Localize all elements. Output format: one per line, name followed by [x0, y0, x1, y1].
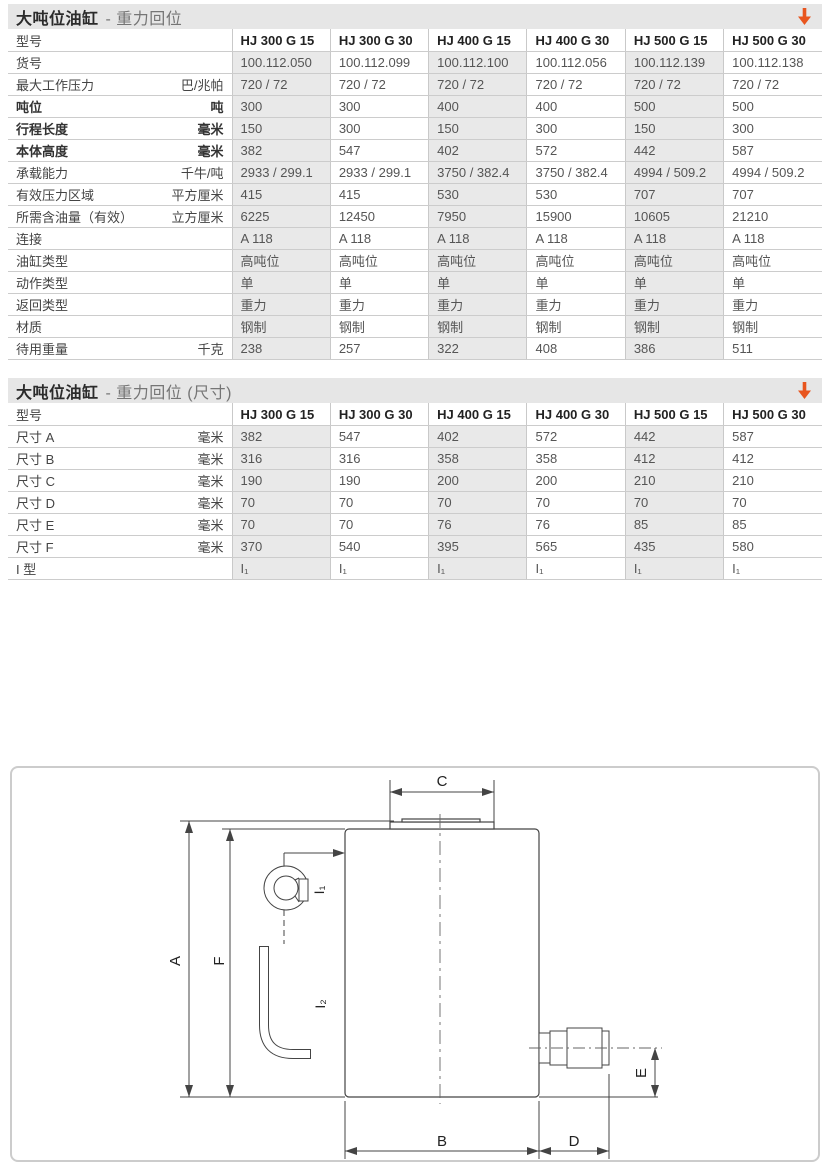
cell-value: 高吨位 — [330, 250, 428, 272]
cell-value: 10605 — [625, 206, 723, 228]
row-label: 货号 — [16, 53, 42, 72]
cell-value: 408 — [527, 338, 625, 360]
cell-value: 587 — [724, 140, 822, 162]
cell-value: 70 — [724, 492, 822, 514]
dim-label-a: A — [167, 956, 184, 966]
cell-value: 442 — [625, 140, 723, 162]
cell-value: 重力 — [625, 294, 723, 316]
cell-value: 300 — [330, 96, 428, 118]
cell-value: 565 — [527, 536, 625, 558]
cell-value: 钢制 — [527, 316, 625, 338]
cell-value: I₁ — [429, 558, 527, 580]
cell-value: I₁ — [330, 558, 428, 580]
section-title: 大吨位油缸 — [16, 5, 99, 29]
cell-value: I₁ — [625, 558, 723, 580]
cell-value: 2933 / 299.1 — [232, 162, 330, 184]
cell-value: 572 — [527, 426, 625, 448]
cell-value: 316 — [330, 448, 428, 470]
cell-value: 720 / 72 — [232, 74, 330, 96]
table-row: 行程长度毫米150300150300150300 — [8, 118, 822, 140]
cell-value: 7950 — [429, 206, 527, 228]
model-header: 型号 — [8, 403, 232, 426]
table-row: 吨位吨300300400400500500 — [8, 96, 822, 118]
cell-value: 70 — [625, 492, 723, 514]
cell-value: 70 — [527, 492, 625, 514]
model-header: 型号 — [8, 29, 232, 52]
section-title-bar: 大吨位油缸 - 重力回位 (尺寸) — [8, 378, 822, 403]
cell-value: I₁ — [724, 558, 822, 580]
cell-value: 382 — [232, 426, 330, 448]
row-unit: 毫米 — [197, 119, 223, 138]
section-title: 大吨位油缸 — [16, 379, 99, 403]
cell-value: 76 — [527, 514, 625, 536]
cell-value: 高吨位 — [625, 250, 723, 272]
cell-value: 100.112.100 — [429, 52, 527, 74]
cell-value: 6225 — [232, 206, 330, 228]
cell-value: 100.112.139 — [625, 52, 723, 74]
cell-value: 415 — [330, 184, 428, 206]
row-unit: 毫米 — [197, 515, 223, 534]
section-subtitle: - 重力回位 — [106, 5, 183, 29]
table-row: 尺寸 B毫米316316358358412412 — [8, 448, 822, 470]
row-label: 油缸类型 — [16, 251, 68, 270]
coupler-i1 — [264, 849, 345, 944]
column-header: HJ 500 G 15 — [625, 29, 723, 52]
spec-section: 大吨位油缸 - 重力回位 型号HJ 300 G 15HJ 300 G 30HJ … — [8, 4, 822, 360]
label-i2: I₂ — [312, 999, 328, 1008]
row-label: I 型 — [16, 559, 36, 578]
cell-value: 重力 — [330, 294, 428, 316]
cell-value: 钢制 — [724, 316, 822, 338]
cell-value: 210 — [625, 470, 723, 492]
cell-value: 100.112.099 — [330, 52, 428, 74]
column-header: HJ 300 G 15 — [232, 29, 330, 52]
row-unit: 吨 — [210, 97, 223, 116]
row-unit: 毫米 — [197, 471, 223, 490]
row-unit: 毫米 — [197, 141, 223, 160]
row-label: 返回类型 — [16, 295, 68, 314]
dimension-section: 大吨位油缸 - 重力回位 (尺寸) 型号HJ 300 G 15HJ 300 G … — [8, 378, 822, 580]
cell-value: A 118 — [527, 228, 625, 250]
cell-value: 190 — [330, 470, 428, 492]
column-header: HJ 300 G 30 — [330, 29, 428, 52]
row-label: 本体高度 — [16, 141, 68, 160]
cell-value: 500 — [724, 96, 822, 118]
cell-value: 257 — [330, 338, 428, 360]
row-unit: 毫米 — [197, 537, 223, 556]
column-header: HJ 400 G 30 — [527, 403, 625, 426]
cell-value: 412 — [625, 448, 723, 470]
cell-value: 720 / 72 — [625, 74, 723, 96]
column-header: HJ 400 G 30 — [527, 29, 625, 52]
cell-value: 720 / 72 — [429, 74, 527, 96]
cell-value: 316 — [232, 448, 330, 470]
cell-value: 300 — [527, 118, 625, 140]
cell-value: 200 — [527, 470, 625, 492]
cell-value: 382 — [232, 140, 330, 162]
cell-value: 高吨位 — [527, 250, 625, 272]
cell-value: 587 — [724, 426, 822, 448]
cell-value: 高吨位 — [232, 250, 330, 272]
row-label: 尺寸 D — [16, 493, 55, 512]
cell-value: 358 — [429, 448, 527, 470]
row-unit: 千牛/吨 — [181, 163, 224, 182]
cell-value: 547 — [330, 426, 428, 448]
table-row: 待用重量千克238257322408386511 — [8, 338, 822, 360]
cell-value: 12450 — [330, 206, 428, 228]
section-subtitle: - 重力回位 (尺寸) — [106, 379, 232, 403]
cell-value: 707 — [724, 184, 822, 206]
section-title-bar: 大吨位油缸 - 重力回位 — [8, 4, 822, 29]
cell-value: 540 — [330, 536, 428, 558]
cell-value: 530 — [429, 184, 527, 206]
cell-value: 70 — [232, 514, 330, 536]
cell-value: 70 — [232, 492, 330, 514]
cell-value: 150 — [625, 118, 723, 140]
row-unit: 巴/兆帕 — [181, 75, 224, 94]
cell-value: 210 — [724, 470, 822, 492]
row-unit: 立方厘米 — [171, 207, 223, 226]
table-row: 动作类型单单单单单单 — [8, 272, 822, 294]
table-row: 尺寸 D毫米707070707070 — [8, 492, 822, 514]
dim-label-c: C — [437, 773, 448, 790]
cell-value: 单 — [625, 272, 723, 294]
row-unit: 毫米 — [197, 427, 223, 446]
cell-value: 重力 — [724, 294, 822, 316]
cell-value: 85 — [724, 514, 822, 536]
cell-value: 15900 — [527, 206, 625, 228]
cell-value: 单 — [232, 272, 330, 294]
cell-value: 400 — [527, 96, 625, 118]
cell-value: 100.112.138 — [724, 52, 822, 74]
orange-down-arrow-icon[interactable] — [794, 380, 814, 402]
column-header: HJ 500 G 15 — [625, 403, 723, 426]
row-label: 尺寸 C — [16, 471, 55, 490]
row-label: 动作类型 — [16, 273, 68, 292]
column-header: HJ 300 G 30 — [330, 403, 428, 426]
cell-value: 720 / 72 — [527, 74, 625, 96]
spec-table: 型号HJ 300 G 15HJ 300 G 30HJ 400 G 15HJ 40… — [8, 29, 822, 360]
orange-down-arrow-icon[interactable] — [794, 6, 814, 28]
cell-value: 720 / 72 — [330, 74, 428, 96]
dim-label-f: F — [211, 956, 228, 965]
cell-value: 435 — [625, 536, 723, 558]
table-row: 尺寸 F毫米370540395565435580 — [8, 536, 822, 558]
saddle-top — [402, 819, 480, 822]
cell-value: 200 — [429, 470, 527, 492]
dim-label-d: D — [569, 1133, 580, 1150]
cell-value: 钢制 — [232, 316, 330, 338]
cell-value: I₁ — [527, 558, 625, 580]
cell-value: 3750 / 382.4 — [527, 162, 625, 184]
cell-value: A 118 — [330, 228, 428, 250]
table-row: 本体高度毫米382547402572442587 — [8, 140, 822, 162]
cell-value: 100.112.056 — [527, 52, 625, 74]
cell-value: 415 — [232, 184, 330, 206]
saddle-plate — [390, 822, 494, 829]
cell-value: 2933 / 299.1 — [330, 162, 428, 184]
table-row: 尺寸 C毫米190190200200210210 — [8, 470, 822, 492]
technical-drawing-panel: C B D A F E I₁ I₂ — [10, 766, 820, 1162]
cell-value: 钢制 — [625, 316, 723, 338]
handle-i2 — [259, 946, 311, 1059]
cell-value: A 118 — [625, 228, 723, 250]
row-label: 承载能力 — [16, 163, 68, 182]
row-label: 尺寸 B — [16, 449, 54, 468]
cell-value: 高吨位 — [724, 250, 822, 272]
cell-value: I₁ — [232, 558, 330, 580]
cell-value: 21210 — [724, 206, 822, 228]
table-row: 材质钢制钢制钢制钢制钢制钢制 — [8, 316, 822, 338]
cell-value: 358 — [527, 448, 625, 470]
row-label: 尺寸 F — [16, 537, 54, 556]
cell-value: 70 — [429, 492, 527, 514]
row-label: 最大工作压力 — [16, 75, 94, 94]
cell-value: 单 — [527, 272, 625, 294]
table-row: 尺寸 E毫米707076768585 — [8, 514, 822, 536]
table-header-row: 型号HJ 300 G 15HJ 300 G 30HJ 400 G 15HJ 40… — [8, 403, 822, 426]
cell-value: 高吨位 — [429, 250, 527, 272]
cell-value: 402 — [429, 426, 527, 448]
cell-value: 单 — [724, 272, 822, 294]
cell-value: 单 — [330, 272, 428, 294]
cell-value: A 118 — [724, 228, 822, 250]
cell-value: 重力 — [429, 294, 527, 316]
cell-value: 511 — [724, 338, 822, 360]
cell-value: A 118 — [429, 228, 527, 250]
cell-value: 386 — [625, 338, 723, 360]
cell-value: 370 — [232, 536, 330, 558]
cell-value: 300 — [724, 118, 822, 140]
row-unit: 毫米 — [197, 493, 223, 512]
row-label: 待用重量 — [16, 339, 68, 358]
table-row: 油缸类型高吨位高吨位高吨位高吨位高吨位高吨位 — [8, 250, 822, 272]
row-label: 连接 — [16, 229, 42, 248]
cell-value: 4994 / 509.2 — [625, 162, 723, 184]
dimension-table: 型号HJ 300 G 15HJ 300 G 30HJ 400 G 15HJ 40… — [8, 403, 822, 580]
cell-value: 442 — [625, 426, 723, 448]
label-i1: I₁ — [311, 885, 327, 894]
cell-value: 重力 — [232, 294, 330, 316]
cell-value: A 118 — [232, 228, 330, 250]
cell-value: 400 — [429, 96, 527, 118]
row-label: 有效压力区域 — [16, 185, 94, 204]
cell-value: 720 / 72 — [724, 74, 822, 96]
dim-label-e: E — [633, 1068, 650, 1078]
table-row: I 型I₁I₁I₁I₁I₁I₁ — [8, 558, 822, 580]
cell-value: 402 — [429, 140, 527, 162]
cell-value: 85 — [625, 514, 723, 536]
cell-value: 238 — [232, 338, 330, 360]
row-unit: 毫米 — [197, 449, 223, 468]
row-unit: 平方厘米 — [171, 185, 223, 204]
row-label: 尺寸 E — [16, 515, 54, 534]
cell-value: 重力 — [527, 294, 625, 316]
cell-value: 150 — [232, 118, 330, 140]
cell-value: 70 — [330, 514, 428, 536]
cell-value: 322 — [429, 338, 527, 360]
row-unit: 千克 — [197, 339, 223, 358]
cylinder-drawing: C B D A F E I₁ I₂ — [12, 768, 818, 1160]
cell-value: 钢制 — [330, 316, 428, 338]
cell-value: 547 — [330, 140, 428, 162]
cell-value: 500 — [625, 96, 723, 118]
dim-label-b: B — [437, 1133, 447, 1150]
table-row: 连接A 118A 118A 118A 118A 118A 118 — [8, 228, 822, 250]
table-row: 所需含油量（有效）立方厘米622512450795015900106052121… — [8, 206, 822, 228]
cell-value: 530 — [527, 184, 625, 206]
table-row: 尺寸 A毫米382547402572442587 — [8, 426, 822, 448]
cell-value: 190 — [232, 470, 330, 492]
cell-value: 580 — [724, 536, 822, 558]
row-label: 行程长度 — [16, 119, 68, 138]
column-header: HJ 500 G 30 — [724, 403, 822, 426]
cell-value: 412 — [724, 448, 822, 470]
table-row: 有效压力区域平方厘米415415530530707707 — [8, 184, 822, 206]
cell-value: 70 — [330, 492, 428, 514]
table-row: 返回类型重力重力重力重力重力重力 — [8, 294, 822, 316]
row-label: 尺寸 A — [16, 427, 54, 446]
cell-value: 707 — [625, 184, 723, 206]
cell-value: 395 — [429, 536, 527, 558]
column-header: HJ 500 G 30 — [724, 29, 822, 52]
column-header: HJ 400 G 15 — [429, 29, 527, 52]
cell-value: 4994 / 509.2 — [724, 162, 822, 184]
table-row: 最大工作压力巴/兆帕720 / 72720 / 72720 / 72720 / … — [8, 74, 822, 96]
cell-value: 单 — [429, 272, 527, 294]
row-label: 材质 — [16, 317, 42, 336]
cell-value: 钢制 — [429, 316, 527, 338]
cylinder-body — [345, 819, 539, 1097]
row-label: 吨位 — [16, 97, 42, 116]
cell-value: 100.112.050 — [232, 52, 330, 74]
row-label: 所需含油量（有效） — [16, 207, 133, 226]
table-row: 承载能力千牛/吨2933 / 299.12933 / 299.13750 / 3… — [8, 162, 822, 184]
cell-value: 3750 / 382.4 — [429, 162, 527, 184]
column-header: HJ 300 G 15 — [232, 403, 330, 426]
cell-value: 150 — [429, 118, 527, 140]
cell-value: 76 — [429, 514, 527, 536]
cell-value: 300 — [330, 118, 428, 140]
column-header: HJ 400 G 15 — [429, 403, 527, 426]
cell-value: 300 — [232, 96, 330, 118]
table-header-row: 型号HJ 300 G 15HJ 300 G 30HJ 400 G 15HJ 40… — [8, 29, 822, 52]
table-row: 货号100.112.050100.112.099100.112.100100.1… — [8, 52, 822, 74]
cell-value: 572 — [527, 140, 625, 162]
